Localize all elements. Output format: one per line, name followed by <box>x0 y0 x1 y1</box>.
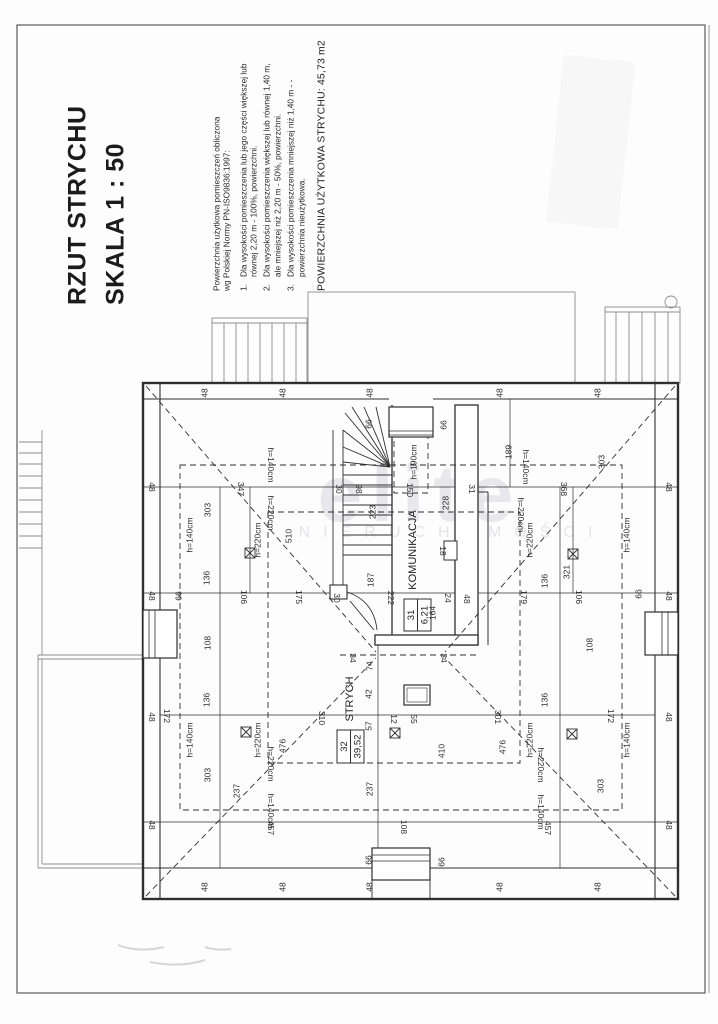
dimension-label: 48 <box>664 712 674 722</box>
dimension-label: 106 <box>574 590 584 604</box>
dimension-label: h=140cm <box>184 722 194 757</box>
dimension-label: 48 <box>664 820 674 830</box>
dimension-label: 66 <box>438 420 448 430</box>
dimension-label: 321 <box>561 565 571 579</box>
dimension-label: 66 <box>173 591 183 601</box>
dimension-label: 136 <box>539 693 549 707</box>
dimension-label: h=220cm <box>252 522 262 557</box>
dimension-label: 476 <box>497 740 507 754</box>
dimension-label: 164 <box>427 606 437 620</box>
dimension-label: 347 <box>236 482 246 496</box>
dimension-label: 237 <box>364 782 374 796</box>
dimension-label: 66 <box>436 857 446 867</box>
dimension-label: 30 <box>334 484 344 494</box>
dimension-label: 457 <box>266 821 276 835</box>
dimension-label: 12 <box>389 714 399 724</box>
dimension-label: 48 <box>277 882 287 892</box>
dimension-label: 66 <box>633 589 643 599</box>
drawing-title: RZUT STRYCHU <box>60 55 98 305</box>
dimension-label: 48 <box>664 482 674 492</box>
dimension-label: 42 <box>363 689 373 699</box>
dimension-label: 237 <box>231 784 241 798</box>
dimension-label: 301 <box>493 710 503 724</box>
dimension-label: 222 <box>386 591 396 605</box>
dimension-label: 106 <box>239 590 249 604</box>
dimension-label: 303 <box>202 503 212 517</box>
dimension-label: 368 <box>559 482 569 496</box>
room-area: 39,52 <box>353 735 364 759</box>
dimension-label: 34 <box>439 653 449 663</box>
legend-item-text: Dla wysokości pomieszczenia mniejszej ni… <box>286 53 307 277</box>
dimension-label: 48 <box>147 482 157 492</box>
legend-item: 2. Dla wysokości pomieszczenia większej … <box>262 53 283 291</box>
dimension-label: h=220cm <box>252 722 262 757</box>
dimension-label: 66 <box>363 419 373 429</box>
dimension-label: 48 <box>199 882 209 892</box>
dimension-label: 48 <box>147 712 157 722</box>
legend-item: 3. Dla wysokości pomieszczenia mniejszej… <box>286 53 307 291</box>
dimension-label: 108 <box>202 636 212 650</box>
dimension-label: 310 <box>317 711 327 725</box>
legend-block: Powierzchnia użytkowa pomieszczeń oblicz… <box>212 53 329 291</box>
dimension-label: 48 <box>592 388 602 398</box>
dimension-label: 510 <box>283 529 293 543</box>
legend-item-text: Dla wysokości pomieszczenia lub jego czę… <box>238 53 259 277</box>
dimension-label: 48 <box>147 591 157 601</box>
dimension-label: 31 <box>467 484 477 494</box>
scanned-floor-plan-sheet: elite NIERUCHOMOŚCI <box>0 0 718 1024</box>
dimension-label: 34 <box>348 653 358 663</box>
legend-item: 1. Dla wysokości pomieszczenia lub jego … <box>238 53 259 291</box>
dimension-label: 74 <box>364 661 374 671</box>
dimension-label: 18 <box>438 546 448 556</box>
window-right <box>645 612 678 655</box>
dimension-label: 55 <box>409 714 419 724</box>
dimension-label: h=140cm <box>621 517 631 552</box>
drawing-scale: SKALA 1 : 50 <box>97 55 135 305</box>
dimension-label: 48 <box>147 820 157 830</box>
dimension-label: h=220cm <box>266 746 276 781</box>
dimension-label: h=140cm <box>621 722 631 757</box>
chimney <box>404 685 430 705</box>
dimension-label: 24 <box>443 593 453 603</box>
legend-item-number: 1. <box>238 277 259 291</box>
dimension-label: 48 <box>592 882 602 892</box>
room-name: KOMUNIKACJA <box>407 510 419 590</box>
dimension-label: 303 <box>596 455 606 469</box>
dimension-label: 457 <box>543 821 553 835</box>
dimension-label: 48 <box>199 388 209 398</box>
dimension-label: 175 <box>294 590 304 604</box>
dimension-label: h=140cm <box>266 447 276 482</box>
dimension-label: h=220cm <box>524 722 534 757</box>
dimension-label: h=220cm <box>536 747 546 782</box>
dimension-label: 476 <box>277 739 287 753</box>
dimension-label: 136 <box>201 693 211 707</box>
dimension-label: 108 <box>399 820 409 834</box>
total-usable-area: POWIERZCHNIA UŻYTKOWA STRYCHU: 45,73 m2 <box>315 53 328 291</box>
room-number: 31 <box>406 610 417 621</box>
dimension-label: 303 <box>595 779 605 793</box>
dimension-label: h=140cm <box>184 517 194 552</box>
dimension-label: 223 <box>367 505 377 519</box>
dimension-label: 136 <box>201 571 211 585</box>
dimension-label: 108 <box>584 638 594 652</box>
dimension-label: 48 <box>462 594 472 604</box>
dimension-label: 66 <box>363 855 373 865</box>
dimension-label: 30 <box>332 593 342 603</box>
dimension-label: 228 <box>440 496 450 510</box>
legend-intro: Powierzchnia użytkowa pomieszczeń oblicz… <box>212 53 233 291</box>
dimension-label: 189 <box>503 445 513 459</box>
dimension-label: 187 <box>365 573 375 587</box>
legend-item-text: Dla wysokości pomieszczenia większej lub… <box>262 53 283 277</box>
dimension-label: 48 <box>494 388 504 398</box>
dimension-label: h=220cm <box>266 495 276 530</box>
dimension-label: 48 <box>277 388 287 398</box>
dimension-label: h=140cm <box>521 449 531 484</box>
legend-item-number: 2. <box>262 277 283 291</box>
room-name: STRYCH <box>344 676 356 721</box>
dimension-label: 172 <box>162 709 172 723</box>
legend-item-number: 3. <box>286 277 307 291</box>
dimension-label: 48 <box>364 882 374 892</box>
dimension-label: 150 <box>405 483 415 497</box>
dimension-label: 136 <box>539 574 549 588</box>
dimension-label: 98 <box>354 484 364 494</box>
dimension-label: 303 <box>202 768 212 782</box>
dimension-label: 57 <box>363 721 373 731</box>
top-landing-door <box>389 407 433 437</box>
dimension-label: h=220cm <box>516 497 526 532</box>
dimension-label: 48 <box>494 882 504 892</box>
dimension-label: 172 <box>606 709 616 723</box>
dimension-label: 410 <box>436 744 446 758</box>
dimension-label: 48 <box>364 388 374 398</box>
dimension-label: 48 <box>664 591 674 601</box>
dimension-label: 179 <box>519 590 529 604</box>
room-number: 32 <box>339 741 350 752</box>
title-block: RZUT STRYCHU SKALA 1 : 50 <box>60 55 135 305</box>
window-left <box>143 610 177 658</box>
dimension-label: h=190cm <box>408 444 418 479</box>
